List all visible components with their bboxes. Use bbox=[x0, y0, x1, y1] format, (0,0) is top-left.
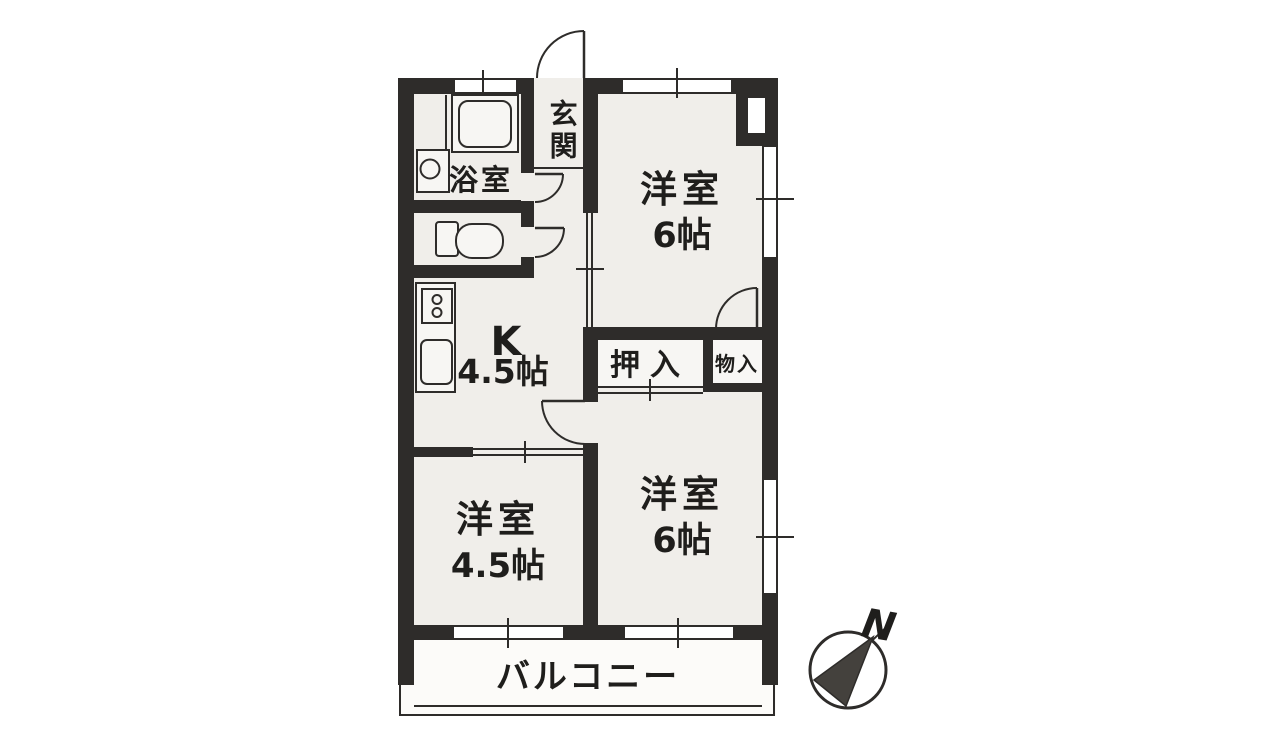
storage-door-arc bbox=[716, 288, 757, 329]
room-label: 洋室 bbox=[601, 472, 763, 518]
toilet-door-arc bbox=[535, 228, 564, 257]
closet-label: 押入 bbox=[600, 348, 700, 384]
kitchen-size: 4.5帖 bbox=[450, 352, 556, 392]
room-size: 6帖 bbox=[601, 213, 763, 259]
western-room-bottom-left: 洋室 4.5帖 bbox=[412, 497, 584, 589]
storage-label: 物入 bbox=[712, 352, 762, 376]
genkan-label: 玄関 bbox=[545, 99, 579, 163]
western-room-bottom-right: 洋室 6帖 bbox=[601, 472, 763, 564]
bathroom-door-arc bbox=[535, 174, 563, 202]
toilet-bowl bbox=[456, 224, 503, 258]
toilet-tank bbox=[436, 222, 458, 256]
room-label: 洋室 bbox=[601, 167, 763, 213]
room-label: 洋室 bbox=[412, 497, 584, 543]
room-size: 6帖 bbox=[601, 518, 763, 564]
room-size: 4.5帖 bbox=[412, 543, 584, 589]
floor-plan: 玄関 浴室 洋室 6帖 K 4.5帖 押入 物入 洋室 6帖 洋室 4.5帖 バ… bbox=[0, 0, 1269, 750]
bathroom-label: 浴室 bbox=[438, 163, 524, 198]
balcony-label: バルコニー bbox=[468, 657, 708, 698]
western-room-top: 洋室 6帖 bbox=[601, 167, 763, 259]
entrance-door-arc bbox=[537, 31, 584, 78]
room-door-arc bbox=[542, 401, 585, 444]
